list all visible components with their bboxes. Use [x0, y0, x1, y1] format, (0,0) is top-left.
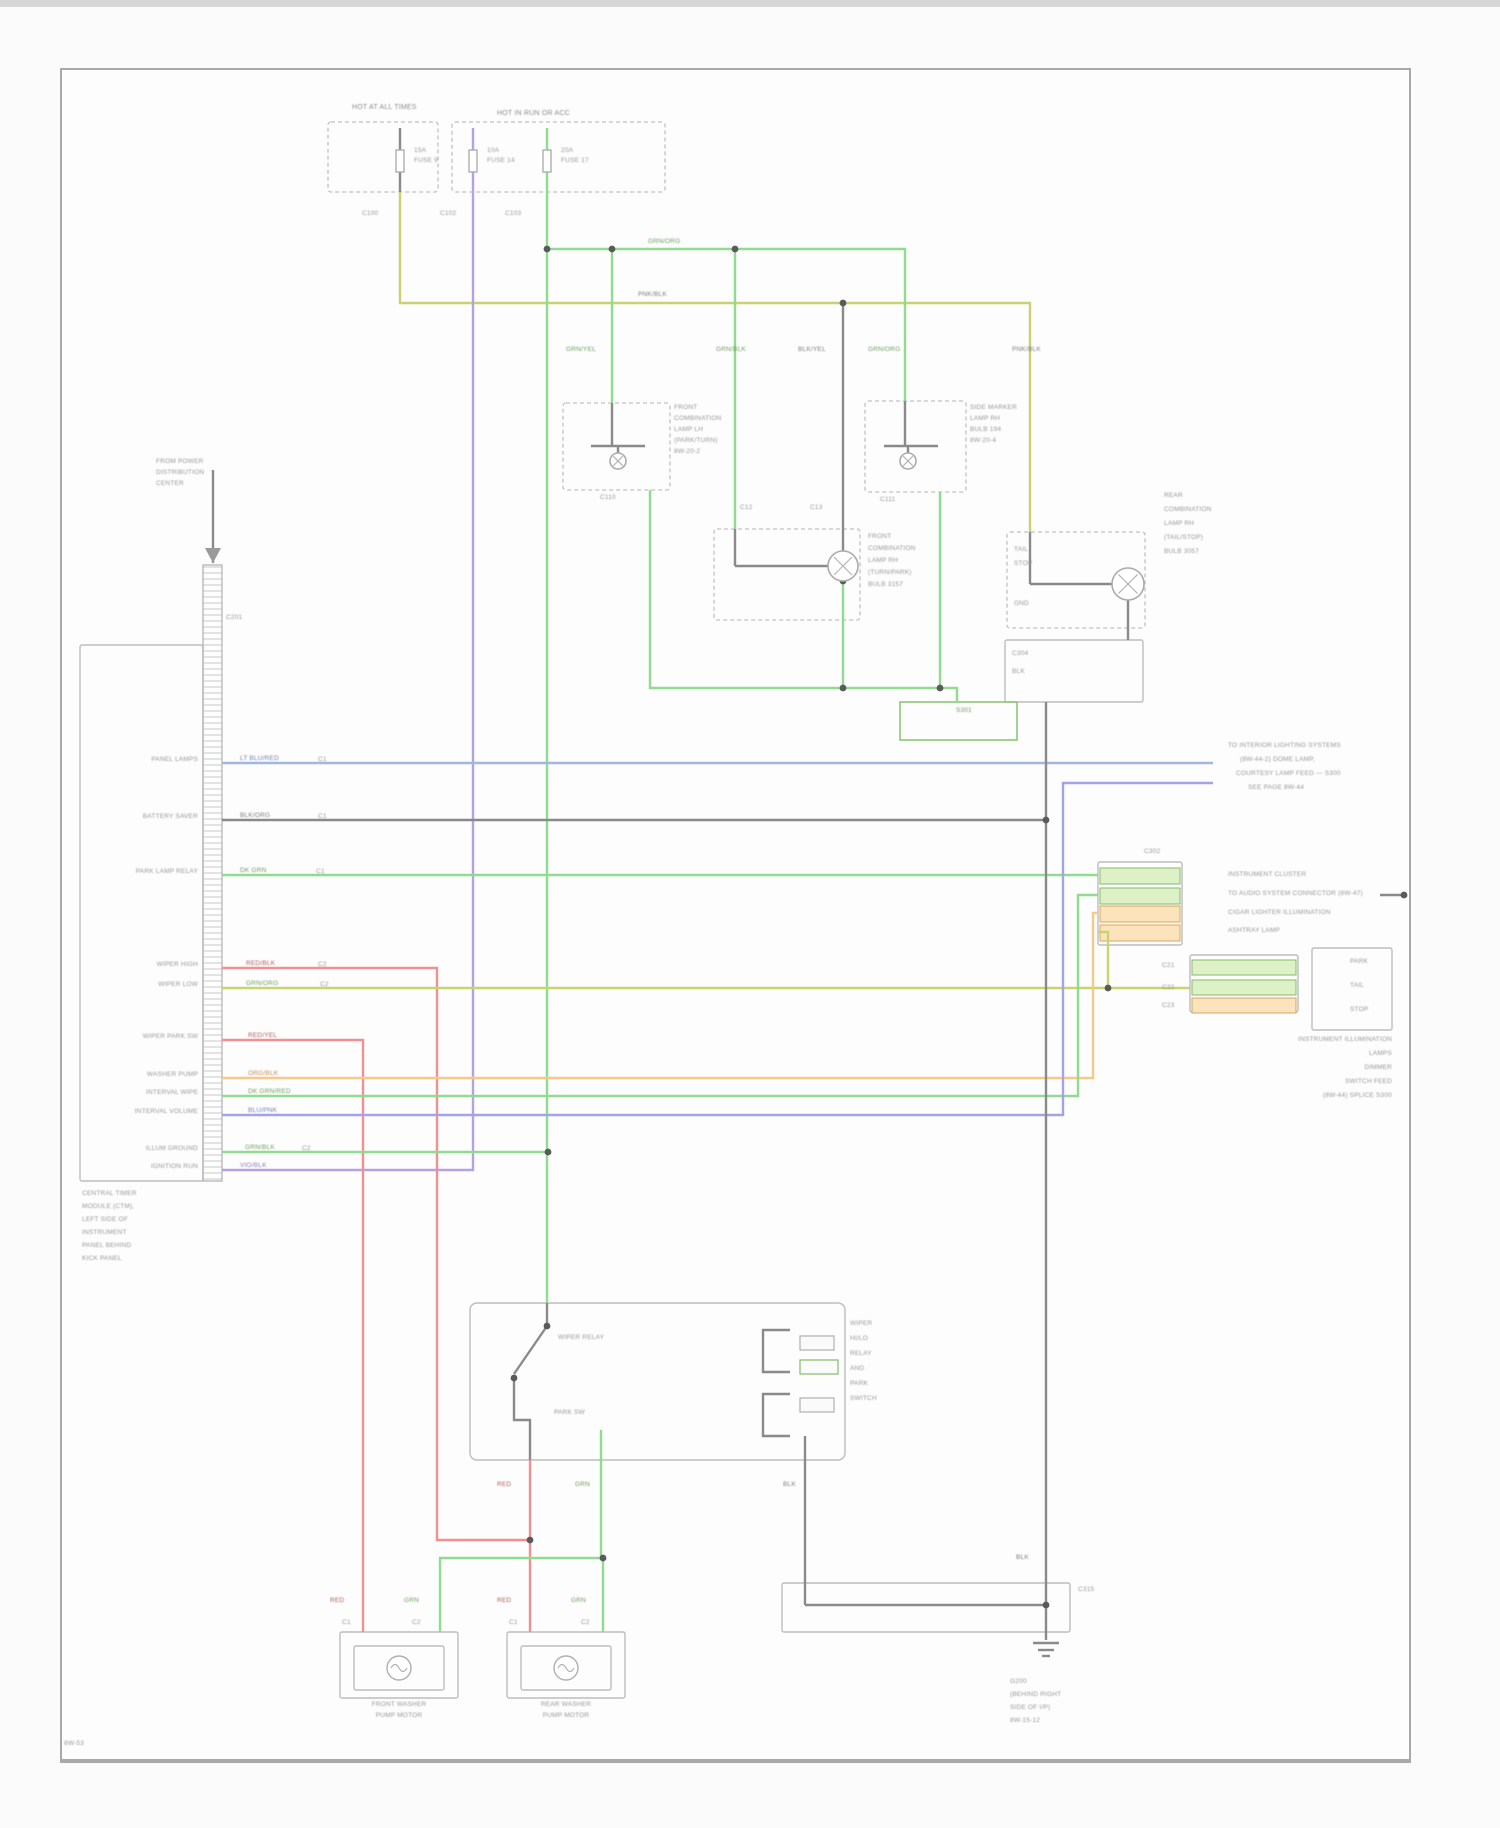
rm-pin-2-label: GRN: [571, 1597, 586, 1604]
fuse1-amp-label: 15A: [414, 147, 426, 154]
relay-text-6-label: SWITCH: [850, 1395, 877, 1402]
relay-label-2-label: PARK SW: [554, 1409, 585, 1416]
tail-conn-label-2-label: BLK: [1012, 668, 1025, 675]
lamp-a-out-wire: [650, 490, 957, 702]
relay-switch-diag-wire: [514, 1326, 547, 1374]
lamp-f-line-4-label: (TAIL/STOP): [1164, 534, 1203, 541]
module-caption-3-label: LEFT SIDE OF: [82, 1216, 128, 1223]
relay-coil-chip-2: [800, 1398, 834, 1412]
lamp-a-conn-label: C110: [600, 494, 616, 501]
illum-row-2: [1100, 888, 1180, 904]
ground-text-1-label: G200: [1010, 1678, 1027, 1685]
module-orange-wire: [222, 913, 1098, 1078]
lamp-f-line-5-label: BULB 3057: [1164, 548, 1199, 555]
module-caption-6-label: KICK PANEL: [82, 1255, 122, 1262]
rm-pin-2c-label: C2: [581, 1619, 590, 1626]
pin-label-8-label: INTERVAL WIPE: [146, 1089, 198, 1096]
relay-coil-chip-0: [800, 1336, 834, 1350]
lamp-c-line-3-label: BULB 194: [970, 426, 1001, 433]
pin-label-5-label: WIPER LOW: [158, 981, 198, 988]
fuse-3-icon: [543, 150, 551, 172]
dimmer-inner-2-label: TAIL: [1350, 982, 1364, 989]
lamp-a-line-4-label: (PARK/TURN): [674, 437, 718, 444]
chip-green1-c-label: C1: [316, 868, 325, 875]
lamp-e-line-3-label: LAMP RH: [868, 557, 898, 564]
hot-header-1-label: HOT AT ALL TIMES: [352, 104, 417, 111]
feed-text-3-label: CENTER: [156, 480, 184, 487]
chip-red1-c-label: C2: [318, 961, 327, 968]
illum-row-4: [1100, 925, 1180, 941]
rm-caption-1-label: REAR WASHER: [541, 1701, 591, 1708]
relay-label-1-label: WIPER RELAY: [558, 1334, 604, 1341]
illum-row-1: [1100, 868, 1180, 884]
pin-label-6-label: WIPER PARK SW: [143, 1033, 198, 1040]
feed-arrow-icon: [205, 548, 221, 563]
lamp-f-row-3-label: GND: [1014, 600, 1029, 607]
chip-blue1-label: LT BLU/RED: [240, 755, 279, 762]
page-code-label: 8W-53: [64, 1740, 84, 1747]
feed-text-1-label: FROM POWER: [156, 458, 204, 465]
module-conn-label-label: C201: [226, 614, 242, 621]
fuse1-name-label: FUSE 9: [414, 157, 438, 164]
fuse2-name-label: FUSE 14: [487, 157, 515, 164]
junction-dot-8: [1105, 985, 1112, 992]
dimmer-text-4-label: SWITCH FEED: [1345, 1078, 1392, 1085]
junction-dot-2: [732, 246, 739, 253]
ground-text-3-label: SIDE OF I/P): [1010, 1704, 1050, 1711]
ground-text-4-label: 8W-15-12: [1010, 1717, 1040, 1724]
lamp-a-line-5-label: 8W-20-2: [674, 448, 700, 455]
fuse3-amp-label: 20A: [561, 147, 573, 154]
rm-pin-1c-label: C1: [509, 1619, 518, 1626]
junction-dot-5: [840, 685, 847, 692]
pin-label-1-label: PANEL LAMPS: [151, 756, 198, 763]
lamp-e-line-4-label: (TURN/PARK): [868, 569, 912, 576]
pin-label-2-label: BATTERY SAVER: [143, 813, 198, 820]
lamp-e-line-2-label: COMBINATION: [868, 545, 916, 552]
relay-coil-2-wire: [763, 1394, 790, 1436]
pin-label-11-label: IGNITION RUN: [151, 1163, 198, 1170]
illum-row-3: [1100, 906, 1180, 922]
relay-text-4-label: AND: [850, 1365, 864, 1372]
pin-label-3-label: PARK LAMP RELAY: [136, 868, 198, 875]
module-caption-4-label: INSTRUMENT: [82, 1229, 127, 1236]
junction-dot-9: [545, 1149, 552, 1156]
chip-purple-label: VIO/BLK: [240, 1162, 267, 1169]
tail-conn-label-1-label: C304: [1012, 650, 1028, 657]
module-red-1-wire: [222, 968, 530, 1632]
ground-wire-label-label: BLK: [1016, 1554, 1029, 1561]
junction-dot-14: [544, 1323, 551, 1330]
relay-coil-chip-1: [800, 1360, 838, 1374]
fuse-2-icon: [469, 150, 477, 172]
dot-label-2-label: TO AUDIO SYSTEM CONNECTOR (8W-47): [1228, 890, 1363, 897]
motor-green-link-wire: [440, 1558, 603, 1632]
chip-green1-label: DK GRN: [240, 867, 266, 874]
conn-c100-label: C100: [362, 210, 378, 217]
junction-dot-13: [1401, 892, 1408, 899]
pin-label-10-label: ILLUM GROUND: [146, 1145, 198, 1152]
lamp-c-line-4-label: 8W-20-4: [970, 437, 996, 444]
module-red-2-wire: [222, 1040, 363, 1632]
junction-dot-11: [600, 1555, 607, 1562]
dimmer-inner-1-label: PARK: [1350, 958, 1368, 965]
drop-label-2-label: GRN/BLK: [716, 346, 746, 353]
dimmer-row-3: [1192, 998, 1296, 1013]
chip-green2-label: DK GRN/RED: [248, 1088, 291, 1095]
relay-text-3-label: RELAY: [850, 1350, 872, 1357]
dimmer-pin-3-label: C23: [1162, 1002, 1175, 1009]
junction-dot-6: [937, 685, 944, 692]
lm-pin-2-label: GRN: [404, 1597, 419, 1604]
chip-ylw-c-label: C2: [320, 981, 329, 988]
ground-text-2-label: (BEHIND RIGHT: [1010, 1691, 1061, 1698]
chip-green3-c-label: C2: [302, 1145, 311, 1152]
lamp-a-line-2-label: COMBINATION: [674, 415, 722, 422]
junction-dot-12: [1043, 1602, 1050, 1609]
module-blue-2-wire: [222, 783, 1213, 1115]
dot-label-4-label: ASHTRAY LAMP: [1228, 927, 1280, 934]
dimmer-text-2-label: LAMPS: [1369, 1050, 1392, 1057]
ignition-purple-wire: [222, 192, 473, 1170]
dimmer-pin-2-label: C22: [1162, 984, 1175, 991]
drop-label-4-label: GRN/ORG: [868, 346, 900, 353]
rm-caption-2-label: PUMP MOTOR: [543, 1712, 590, 1719]
feed-text-2-label: DISTRIBUTION: [156, 469, 204, 476]
dimmer-inner-3-label: STOP: [1350, 1006, 1368, 1013]
lm-pin-2c-label: C2: [412, 1619, 421, 1626]
relay-pin-1-label: RED: [497, 1481, 511, 1488]
dimmer-text-1-label: INSTRUMENT ILLUMINATION: [1298, 1036, 1392, 1043]
fuse3-name-label: FUSE 17: [561, 157, 589, 164]
chip-blue1-c-label: C1: [318, 756, 327, 763]
lamp-a-line-3-label: LAMP LH: [674, 426, 703, 433]
lamp-f-line-2-label: COMBINATION: [1164, 506, 1212, 513]
ground-junction-box: [782, 1583, 1070, 1632]
hot-header-2-label: HOT IN RUN OR ACC: [497, 110, 570, 117]
lamp-e-line-5-label: BULB 3157: [868, 581, 903, 588]
interior-text-3-label: COURTESY LAMP FEED — S300: [1236, 770, 1341, 777]
lm-caption-2-label: PUMP MOTOR: [376, 1712, 423, 1719]
park-bus-green-wire: [547, 249, 905, 401]
fuse-1-icon: [396, 150, 404, 172]
pin-label-9-label: INTERVAL VOLUME: [135, 1108, 198, 1115]
conn-c103-label: C103: [505, 210, 521, 217]
interior-text-1-label: TO INTERIOR LIGHTING SYSTEMS: [1228, 742, 1341, 749]
relay-pin-3-label: BLK: [783, 1481, 796, 1488]
relay-pin-2-label: GRN: [575, 1481, 590, 1488]
lamp-e-pin-1-label: C12: [740, 504, 753, 511]
lamp-e-pin-2-label: C13: [810, 504, 823, 511]
lm-pin-1-label: RED: [330, 1597, 344, 1604]
pin-label-4-label: WIPER HIGH: [157, 961, 198, 968]
pin-label-7-label: WASHER PUMP: [147, 1071, 198, 1078]
relay-int-2-wire: [514, 1378, 530, 1460]
illum-conn-label-label: C302: [1144, 848, 1160, 855]
junction-dot-1: [609, 246, 616, 253]
junction-dot-15: [511, 1375, 518, 1382]
bus-green-label-label: GRN/ORG: [648, 238, 680, 245]
chip-gray-label: BLK/ORG: [240, 812, 270, 819]
feed-bus-olive-wire: [400, 192, 1030, 532]
lamp-f-row-2-label: STOP: [1014, 560, 1032, 567]
lamp-e-line-1-label: FRONT: [868, 533, 891, 540]
drop-label-3-label: BLK/YEL: [798, 346, 826, 353]
chip-blue2-label: BLU/PNK: [248, 1107, 277, 1114]
chip-red2-label: RED/YEL: [248, 1032, 277, 1039]
dimmer-text-3-label: DIMMER: [1364, 1064, 1392, 1071]
module-caption-2-label: MODULE (CTM),: [82, 1203, 134, 1210]
lamp-c-conn-label: C111: [880, 496, 895, 503]
lm-pin-1c-label: C1: [342, 1619, 351, 1626]
relay-text-1-label: WIPER: [850, 1320, 872, 1327]
module-caption-5-label: PANEL BEHIND: [82, 1242, 131, 1249]
chip-ylw-label: GRN/ORG: [246, 980, 278, 987]
dot-label-1-label: INSTRUMENT CLUSTER: [1228, 871, 1306, 878]
wiring-diagram-page: HOT AT ALL TIMESHOT IN RUN OR ACC15AFUSE…: [0, 0, 1500, 1828]
conn-c102-label: C102: [440, 210, 456, 217]
fuse2-amp-label: 10A: [487, 147, 499, 154]
fuse-panel-right: [452, 122, 665, 192]
lm-caption-1-label: FRONT WASHER: [372, 1701, 427, 1708]
rm-pin-1-label: RED: [497, 1597, 511, 1604]
lamp-f-row-1-label: TAIL: [1014, 546, 1028, 553]
junction-dot-3: [840, 300, 847, 307]
dot-label-3-label: CIGAR LIGHTER ILLUMINATION: [1228, 909, 1331, 916]
relay-text-2-label: HI/LO: [850, 1335, 868, 1342]
chip-red1-label: RED/BLK: [246, 960, 275, 967]
dimmer-row-2: [1192, 980, 1296, 995]
junction-dot-0: [544, 246, 551, 253]
lamp-f-line-1-label: REAR: [1164, 492, 1183, 499]
ground-box-label-label: C315: [1078, 1586, 1094, 1593]
interior-text-4-label: SEE PAGE 8W-44: [1248, 784, 1304, 791]
chip-orange-label: ORG/BLK: [248, 1070, 278, 1077]
drop-label-1-label: GRN/YEL: [566, 346, 596, 353]
module-caption-1-label: CENTRAL TIMER: [82, 1190, 137, 1197]
control-module-box: [80, 645, 203, 1181]
relay-text-5-label: PARK: [850, 1380, 868, 1387]
chip-gray-c-label: C1: [318, 813, 327, 820]
lamp-c-line-1-label: SIDE MARKER: [970, 404, 1017, 411]
interior-text-2-label: (8W-44-2) DOME LAMP,: [1240, 756, 1315, 763]
lamp-f-line-3-label: LAMP RH: [1164, 520, 1194, 527]
bus-olive-label-label: PNK/BLK: [638, 291, 667, 298]
module-connector-strip: [203, 565, 222, 1181]
lamp-c-line-2-label: LAMP RH: [970, 415, 1000, 422]
dimmer-text-5-label: (8W-44) SPLICE S300: [1323, 1092, 1392, 1099]
junction-dot-10: [527, 1537, 534, 1544]
drop-label-5-label: PNK/BLK: [1012, 346, 1041, 353]
dimmer-row-1: [1192, 960, 1296, 975]
chip-green3-label: GRN/BLK: [245, 1144, 275, 1151]
junction-dot-7: [1043, 817, 1050, 824]
dimmer-pin-1-label: C21: [1162, 962, 1175, 969]
lamp-a-line-1-label: FRONT: [674, 404, 697, 411]
relay-coil-1-wire: [763, 1330, 790, 1372]
splice-green-label-label: S301: [956, 707, 972, 714]
module-green-2-wire: [222, 895, 1098, 1096]
